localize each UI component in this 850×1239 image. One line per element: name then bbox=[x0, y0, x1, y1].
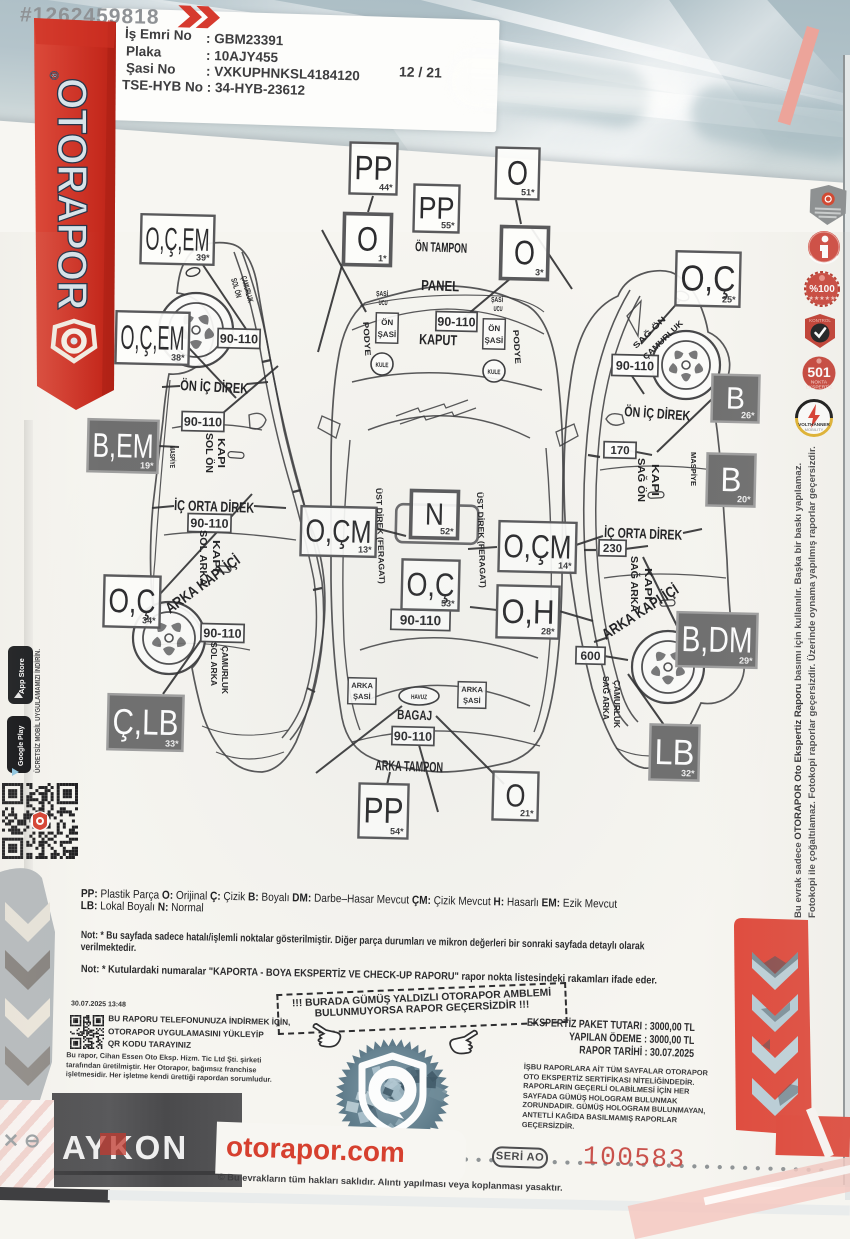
svg-text:İÇ ORTA DİREK: İÇ ORTA DİREK bbox=[174, 497, 255, 517]
svg-text:PANEL: PANEL bbox=[421, 278, 460, 295]
svg-text:ŞASİ: ŞASİ bbox=[377, 330, 396, 339]
svg-text:%100: %100 bbox=[809, 284, 835, 295]
svg-text:600: 600 bbox=[580, 649, 601, 663]
svg-text:52*: 52* bbox=[440, 526, 454, 536]
svg-text:HAVUZ: HAVUZ bbox=[411, 694, 427, 701]
svg-text:1*: 1* bbox=[378, 253, 387, 263]
svg-text:53*: 53* bbox=[441, 598, 455, 608]
svg-text:44*: 44* bbox=[379, 182, 393, 192]
svg-text:MOBILITY: MOBILITY bbox=[805, 427, 824, 432]
svg-text:Ç,LB: Ç,LB bbox=[112, 701, 179, 743]
svg-text:O: O bbox=[357, 220, 379, 258]
svg-text:PODYE: PODYE bbox=[361, 322, 372, 357]
svg-text:230: 230 bbox=[603, 543, 622, 555]
svg-text:SOL ARKA: SOL ARKA bbox=[209, 642, 218, 686]
svg-text:PODYE: PODYE bbox=[511, 330, 522, 365]
svg-text:90-110: 90-110 bbox=[437, 315, 476, 330]
svg-text:25*: 25* bbox=[722, 294, 736, 304]
svg-text:ŞASİ: ŞASİ bbox=[491, 296, 503, 304]
svg-text:20*: 20* bbox=[737, 494, 751, 504]
svg-text:ŞASİ: ŞASİ bbox=[484, 336, 503, 345]
svg-text:90-110: 90-110 bbox=[184, 415, 223, 430]
svg-text:Google Play: Google Play bbox=[18, 725, 25, 766]
svg-text:55*: 55* bbox=[441, 220, 455, 230]
svg-text:MASPİYE: MASPİYE bbox=[689, 452, 698, 486]
svg-text:51*: 51* bbox=[521, 187, 535, 197]
svg-text:SOL ÖN: SOL ÖN bbox=[203, 433, 216, 473]
svg-text:33*: 33* bbox=[165, 738, 179, 748]
svg-text:App Store: App Store bbox=[17, 658, 26, 694]
svg-text:39*: 39* bbox=[196, 252, 210, 262]
svg-text:29*: 29* bbox=[739, 656, 753, 666]
svg-text:O: O bbox=[514, 234, 536, 272]
svg-text:3*: 3* bbox=[535, 267, 544, 277]
svg-text:★★★★★: ★★★★★ bbox=[809, 295, 836, 302]
svg-text:ŞASİ: ŞASİ bbox=[376, 290, 388, 298]
svg-text:ÖN İÇ DİREK: ÖN İÇ DİREK bbox=[180, 377, 249, 398]
svg-text:ARKA TAMPON: ARKA TAMPON bbox=[375, 758, 444, 776]
svg-text:SAĞ ÖN: SAĞ ÖN bbox=[635, 458, 648, 502]
svg-text:32*: 32* bbox=[681, 768, 695, 778]
svg-text:ÜST DİREK (FERAGAT): ÜST DİREK (FERAGAT) bbox=[374, 488, 386, 585]
svg-text:90-110: 90-110 bbox=[394, 729, 433, 744]
svg-text:14*: 14* bbox=[558, 560, 572, 570]
svg-text:KONTROL: KONTROL bbox=[809, 318, 831, 323]
svg-text:BAGAJ: BAGAJ bbox=[397, 707, 433, 723]
svg-text:PP: PP bbox=[363, 789, 404, 831]
svg-text:26*: 26* bbox=[741, 410, 755, 420]
svg-text:54*: 54* bbox=[390, 826, 404, 836]
svg-text:ŞASİ: ŞASİ bbox=[463, 696, 481, 705]
svg-text:ARKA: ARKA bbox=[351, 681, 373, 691]
svg-text:ÜST DİREK (FERAGAT): ÜST DİREK (FERAGAT) bbox=[475, 492, 487, 589]
svg-text:İÇ ORTA DİREK: İÇ ORTA DİREK bbox=[604, 524, 683, 543]
svg-text:28*: 28* bbox=[541, 626, 555, 636]
svg-text:UCU: UCU bbox=[493, 306, 502, 313]
svg-text:90-110: 90-110 bbox=[400, 612, 442, 628]
svg-text:170: 170 bbox=[610, 445, 629, 457]
svg-text:ARKA: ARKA bbox=[461, 685, 483, 695]
svg-text:19*: 19* bbox=[140, 460, 154, 470]
svg-text:KAPUT: KAPUT bbox=[419, 332, 458, 349]
svg-text:KAPI: KAPI bbox=[215, 438, 227, 468]
svg-text:ÇAMURLUK: ÇAMURLUK bbox=[220, 646, 229, 694]
svg-text:KULE: KULE bbox=[487, 369, 501, 376]
svg-text:38*: 38* bbox=[171, 352, 185, 362]
svg-text:90-110: 90-110 bbox=[190, 516, 229, 531]
svg-text:90-110: 90-110 bbox=[203, 626, 242, 641]
svg-text:90-110: 90-110 bbox=[616, 359, 655, 374]
svg-text:MASPİYE: MASPİYE bbox=[168, 446, 177, 468]
svg-text:KULE: KULE bbox=[375, 362, 389, 369]
svg-text:ÖN: ÖN bbox=[488, 324, 500, 333]
svg-text:13*: 13* bbox=[358, 544, 372, 554]
svg-text:34*: 34* bbox=[142, 615, 156, 625]
svg-text:ÜCRETSİZ MOBİL UYGULAMAMIZI İN: ÜCRETSİZ MOBİL UYGULAMAMIZI İNDİRİN. bbox=[33, 649, 42, 773]
svg-text:O,Ç: O,Ç bbox=[680, 257, 736, 299]
svg-text:UCU: UCU bbox=[378, 300, 387, 307]
svg-text:SAĞ ARKA: SAĞ ARKA bbox=[601, 676, 610, 720]
svg-text:ÖN TAMPON: ÖN TAMPON bbox=[415, 239, 467, 256]
svg-text:ÇAMURLUK: ÇAMURLUK bbox=[612, 680, 621, 728]
svg-text:ÖN: ÖN bbox=[381, 318, 393, 327]
svg-text:21*: 21* bbox=[520, 808, 534, 818]
svg-text:LB: LB bbox=[654, 731, 695, 773]
svg-text:KAPI: KAPI bbox=[649, 464, 661, 496]
svg-text:B,DM: B,DM bbox=[681, 618, 753, 661]
svg-text:EKSPERTİZ: EKSPERTİZ bbox=[806, 384, 833, 391]
svg-text:90-110: 90-110 bbox=[220, 332, 259, 347]
svg-text:ÖN İÇ DİREK: ÖN İÇ DİREK bbox=[624, 403, 691, 424]
svg-text:ŞASİ: ŞASİ bbox=[353, 692, 371, 701]
svg-text:501: 501 bbox=[807, 364, 831, 380]
